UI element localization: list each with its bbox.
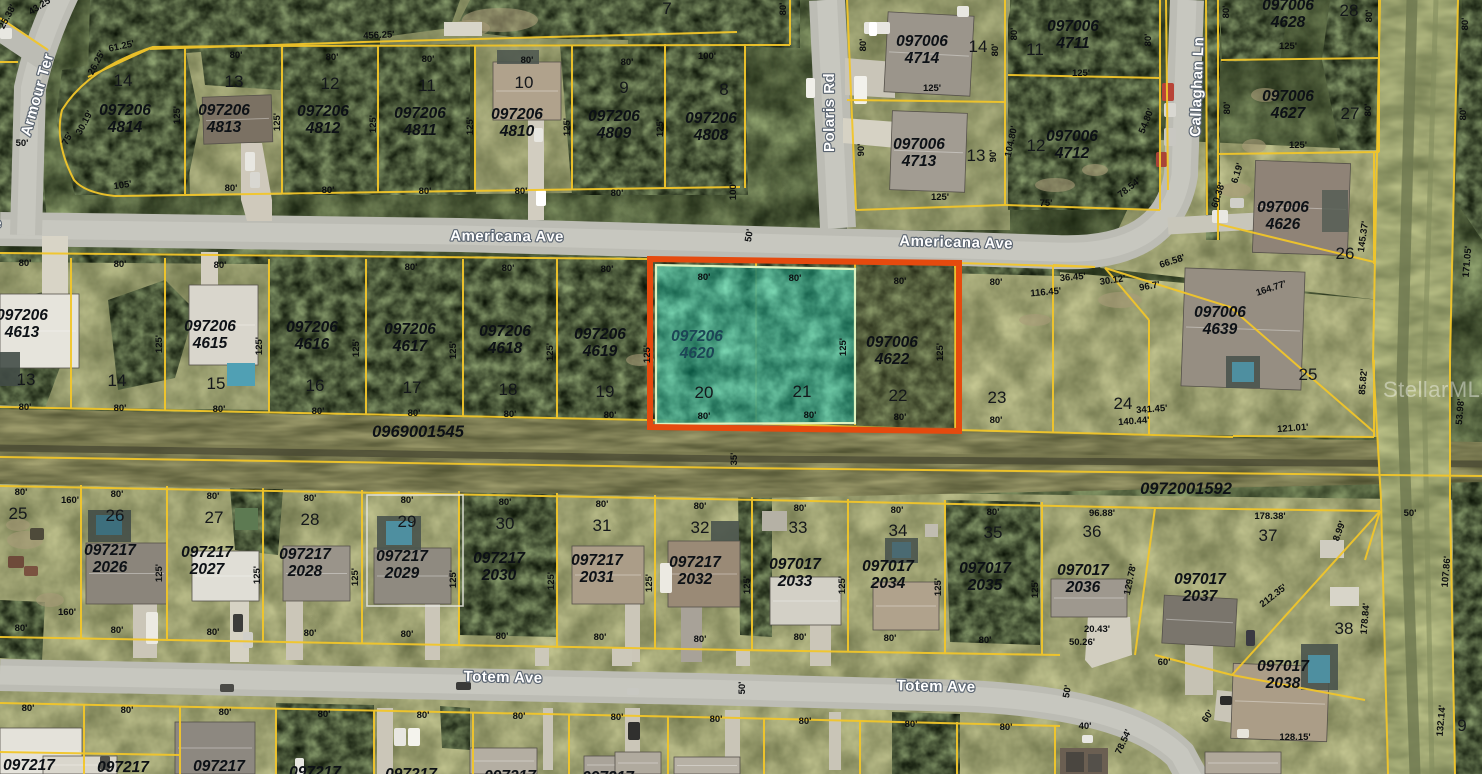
- svg-text:097217: 097217: [193, 758, 246, 774]
- svg-text:80': 80': [698, 272, 711, 283]
- svg-text:80': 80': [611, 712, 624, 723]
- svg-text:80': 80': [304, 628, 317, 639]
- svg-text:24: 24: [1114, 394, 1133, 413]
- svg-text:80': 80': [322, 185, 335, 196]
- svg-text:2030: 2030: [481, 567, 517, 584]
- svg-text:097206: 097206: [286, 319, 338, 336]
- svg-text:80': 80': [230, 50, 243, 61]
- svg-text:125': 125': [154, 335, 165, 353]
- svg-text:80': 80': [990, 44, 1001, 57]
- svg-text:27: 27: [1341, 104, 1360, 123]
- svg-text:4712: 4712: [1054, 145, 1090, 162]
- svg-text:40': 40': [1079, 721, 1092, 732]
- svg-text:2029: 2029: [384, 565, 420, 582]
- svg-text:160': 160': [61, 495, 79, 506]
- svg-text:097217: 097217: [473, 550, 526, 567]
- svg-text:15: 15: [207, 374, 226, 393]
- svg-text:125': 125': [465, 117, 476, 135]
- svg-text:20: 20: [695, 383, 714, 402]
- svg-text:80': 80': [621, 57, 634, 68]
- svg-text:35': 35': [729, 453, 740, 466]
- svg-text:25: 25: [9, 504, 28, 523]
- svg-text:125': 125': [642, 345, 653, 363]
- svg-text:097206: 097206: [574, 326, 626, 343]
- svg-text:4713: 4713: [901, 153, 937, 170]
- svg-text:125': 125': [1279, 41, 1297, 52]
- svg-text:80': 80': [799, 716, 812, 727]
- svg-text:125': 125': [254, 337, 265, 355]
- svg-text:097006: 097006: [1046, 128, 1098, 145]
- svg-text:097006: 097006: [866, 334, 918, 351]
- svg-text:38: 38: [1335, 619, 1354, 638]
- svg-text:50': 50': [16, 138, 29, 149]
- svg-text:80': 80': [225, 183, 238, 194]
- svg-text:097017: 097017: [1174, 571, 1227, 588]
- svg-text:80': 80': [326, 52, 339, 63]
- svg-text:Callaghan Ln: Callaghan Ln: [1187, 36, 1207, 137]
- svg-text:140.44': 140.44': [1118, 415, 1150, 428]
- svg-text:125': 125': [837, 576, 848, 594]
- svg-text:20.43': 20.43': [1084, 624, 1110, 635]
- svg-text:10: 10: [515, 73, 534, 92]
- svg-text:26: 26: [1336, 244, 1355, 263]
- svg-text:23: 23: [988, 388, 1007, 407]
- svg-text:125': 125': [1030, 580, 1041, 598]
- svg-text:097006: 097006: [1257, 199, 1309, 216]
- svg-text:125': 125': [933, 578, 944, 596]
- svg-text:125': 125': [742, 576, 753, 594]
- svg-text:097206: 097206: [394, 105, 446, 122]
- svg-text:4628: 4628: [1270, 14, 1306, 31]
- svg-text:2027: 2027: [189, 561, 226, 578]
- svg-text:125': 125': [655, 119, 666, 137]
- svg-text:13: 13: [967, 146, 986, 165]
- svg-text:80': 80': [1363, 104, 1374, 117]
- svg-text:80': 80': [778, 3, 789, 16]
- svg-text:Ave: Ave: [0, 215, 2, 232]
- svg-text:80': 80': [219, 707, 232, 718]
- svg-text:80': 80': [1009, 28, 1020, 41]
- svg-text:80': 80': [22, 703, 35, 714]
- svg-text:11: 11: [1026, 40, 1044, 59]
- svg-text:4639: 4639: [1202, 321, 1238, 338]
- svg-text:36: 36: [1083, 522, 1102, 541]
- svg-text:90': 90': [988, 150, 999, 163]
- svg-text:21: 21: [793, 382, 812, 401]
- svg-text:125': 125': [272, 113, 283, 131]
- svg-text:60': 60': [1158, 657, 1171, 668]
- svg-text:80': 80': [401, 629, 414, 640]
- svg-text:80': 80': [111, 625, 124, 636]
- svg-text:097017: 097017: [959, 560, 1012, 577]
- svg-text:80': 80': [304, 493, 317, 504]
- svg-text:097217: 097217: [582, 769, 635, 774]
- svg-text:121.01': 121.01': [1277, 422, 1309, 435]
- svg-text:80': 80': [19, 258, 32, 269]
- svg-text:2036: 2036: [1065, 579, 1101, 596]
- svg-text:80': 80': [794, 632, 807, 643]
- svg-text:80': 80': [858, 39, 869, 52]
- svg-text:80': 80': [114, 259, 127, 270]
- svg-text:85.82': 85.82': [1357, 368, 1370, 395]
- svg-text:80': 80': [710, 714, 723, 725]
- svg-text:125': 125': [350, 568, 361, 586]
- svg-text:80': 80': [496, 631, 509, 642]
- svg-text:7: 7: [662, 0, 671, 18]
- svg-text:4711: 4711: [1055, 35, 1089, 52]
- svg-text:097206: 097206: [0, 307, 48, 324]
- svg-text:80': 80': [694, 501, 707, 512]
- svg-text:2026: 2026: [92, 559, 128, 576]
- svg-text:80': 80': [594, 632, 607, 643]
- svg-text:4618: 4618: [487, 340, 523, 357]
- svg-text:80': 80': [207, 491, 220, 502]
- svg-text:50': 50': [743, 228, 756, 243]
- svg-text:4809: 4809: [596, 125, 632, 142]
- svg-text:75': 75': [1040, 198, 1053, 209]
- svg-text:80': 80': [804, 410, 817, 421]
- svg-text:80': 80': [1000, 722, 1013, 733]
- svg-text:11: 11: [418, 76, 436, 95]
- svg-text:456.25': 456.25': [363, 29, 395, 42]
- svg-text:32: 32: [691, 518, 710, 537]
- svg-text:80': 80': [905, 719, 918, 730]
- svg-text:125': 125': [931, 192, 949, 203]
- svg-text:2034: 2034: [870, 575, 906, 592]
- svg-text:125': 125': [172, 106, 183, 124]
- svg-text:80': 80': [111, 489, 124, 500]
- svg-text:80': 80': [15, 487, 28, 498]
- svg-text:2028: 2028: [287, 563, 323, 580]
- svg-text:4616: 4616: [294, 336, 330, 353]
- svg-text:125': 125': [1072, 68, 1090, 79]
- svg-text:4613: 4613: [4, 324, 40, 341]
- svg-text:80': 80': [1458, 108, 1469, 121]
- svg-text:29: 29: [398, 512, 417, 531]
- svg-text:80': 80': [499, 497, 512, 508]
- svg-text:50.26': 50.26': [1069, 637, 1095, 648]
- svg-text:22: 22: [889, 386, 908, 405]
- svg-text:125': 125': [252, 566, 263, 584]
- svg-text:Americana Ave: Americana Ave: [450, 228, 564, 246]
- svg-text:80': 80': [987, 507, 1000, 518]
- svg-text:2031: 2031: [579, 569, 614, 586]
- svg-text:4812: 4812: [305, 120, 341, 137]
- svg-text:13: 13: [17, 370, 36, 389]
- svg-text:4626: 4626: [1265, 216, 1301, 233]
- svg-text:097206: 097206: [479, 323, 531, 340]
- svg-text:50': 50': [1404, 508, 1417, 519]
- svg-text:25: 25: [1299, 365, 1318, 384]
- svg-text:80': 80': [401, 495, 414, 506]
- svg-text:80': 80': [405, 262, 418, 273]
- svg-text:33: 33: [789, 518, 808, 537]
- svg-text:80': 80': [884, 633, 897, 644]
- svg-text:097217: 097217: [279, 546, 332, 563]
- svg-text:125': 125': [368, 115, 379, 133]
- svg-text:80': 80': [502, 263, 515, 274]
- svg-text:4617: 4617: [392, 338, 429, 355]
- svg-text:80': 80': [419, 186, 432, 197]
- svg-text:80': 80': [979, 635, 992, 646]
- svg-text:097217: 097217: [669, 554, 722, 571]
- svg-text:96.88': 96.88': [1089, 508, 1115, 519]
- svg-text:50': 50': [737, 682, 748, 695]
- svg-text:097006: 097006: [1047, 18, 1099, 35]
- svg-text:13: 13: [225, 72, 244, 91]
- svg-text:4622: 4622: [874, 351, 910, 368]
- svg-text:Polaris Rd: Polaris Rd: [821, 73, 838, 152]
- svg-text:125': 125': [448, 341, 459, 359]
- svg-text:097006: 097006: [1262, 0, 1314, 14]
- svg-text:160': 160': [58, 607, 76, 618]
- svg-text:4714: 4714: [904, 50, 940, 67]
- svg-text:097206: 097206: [491, 106, 543, 123]
- svg-text:80': 80': [611, 188, 624, 199]
- svg-text:12: 12: [321, 74, 340, 93]
- svg-text:80': 80': [504, 409, 517, 420]
- svg-text:80': 80': [515, 186, 528, 197]
- svg-text:80': 80': [990, 277, 1003, 288]
- svg-text:125': 125': [923, 83, 941, 94]
- svg-text:37: 37: [1259, 526, 1278, 545]
- svg-text:2033: 2033: [777, 573, 813, 590]
- svg-text:31: 31: [593, 516, 612, 535]
- svg-text:80': 80': [1460, 18, 1471, 31]
- svg-text:4627: 4627: [1270, 105, 1307, 122]
- svg-text:80': 80': [312, 406, 325, 417]
- svg-text:80': 80': [1222, 102, 1233, 115]
- svg-text:100': 100': [698, 51, 716, 62]
- svg-text:097206: 097206: [671, 328, 723, 345]
- svg-text:36.45': 36.45': [1059, 271, 1086, 284]
- svg-text:80': 80': [513, 711, 526, 722]
- svg-text:097217: 097217: [289, 764, 342, 774]
- svg-text:80': 80': [891, 505, 904, 516]
- svg-text:2032: 2032: [677, 571, 713, 588]
- svg-text:4619: 4619: [582, 343, 618, 360]
- svg-text:80': 80': [604, 410, 617, 421]
- svg-text:097217: 097217: [376, 548, 429, 565]
- svg-text:4811: 4811: [402, 122, 436, 139]
- svg-text:80': 80': [213, 404, 226, 415]
- svg-text:80': 80': [789, 273, 802, 284]
- svg-text:9: 9: [1457, 716, 1466, 735]
- svg-text:80': 80': [1364, 10, 1375, 23]
- svg-text:14: 14: [114, 71, 133, 90]
- svg-text:4808: 4808: [693, 127, 729, 144]
- svg-text:097006: 097006: [896, 33, 948, 50]
- svg-text:125': 125': [562, 118, 573, 136]
- svg-text:097006: 097006: [1262, 88, 1314, 105]
- svg-text:80': 80': [694, 634, 707, 645]
- svg-text:50': 50': [1061, 684, 1074, 699]
- svg-text:125': 125': [546, 572, 557, 590]
- svg-text:80': 80': [1143, 34, 1154, 47]
- svg-text:097206: 097206: [588, 108, 640, 125]
- svg-text:9: 9: [619, 78, 628, 97]
- svg-text:097217: 097217: [84, 542, 137, 559]
- svg-text:4615: 4615: [192, 335, 228, 352]
- svg-text:0972001592: 0972001592: [1140, 480, 1232, 498]
- svg-text:80': 80': [318, 709, 331, 720]
- svg-text:2037: 2037: [1182, 588, 1219, 605]
- svg-text:125': 125': [448, 570, 459, 588]
- svg-text:097217: 097217: [571, 552, 624, 569]
- svg-text:0969001545: 0969001545: [372, 423, 465, 441]
- svg-text:4620: 4620: [679, 345, 715, 362]
- svg-text:097217: 097217: [3, 757, 56, 774]
- svg-text:097206: 097206: [198, 102, 250, 119]
- svg-text:128.15': 128.15': [1279, 732, 1310, 743]
- svg-text:097006: 097006: [893, 136, 945, 153]
- svg-text:4814: 4814: [107, 119, 143, 136]
- svg-text:097206: 097206: [685, 110, 737, 127]
- svg-text:80': 80': [19, 402, 32, 413]
- svg-text:30: 30: [496, 514, 515, 533]
- svg-text:097206: 097206: [297, 103, 349, 120]
- svg-text:125': 125': [644, 574, 655, 592]
- svg-text:80': 80': [422, 54, 435, 65]
- svg-text:80': 80': [15, 623, 28, 634]
- svg-text:125': 125': [351, 339, 362, 357]
- svg-text:4813: 4813: [206, 119, 242, 136]
- svg-text:097206: 097206: [99, 102, 151, 119]
- svg-text:125': 125': [838, 338, 849, 356]
- svg-text:125': 125': [1289, 140, 1307, 151]
- svg-text:097217: 097217: [385, 766, 438, 774]
- svg-text:80': 80': [596, 499, 609, 510]
- svg-text:097217: 097217: [181, 544, 234, 561]
- svg-text:StellarMLS: StellarMLS: [1383, 377, 1482, 402]
- svg-text:27: 27: [205, 508, 224, 527]
- svg-text:18: 18: [499, 380, 518, 399]
- svg-text:341.45': 341.45': [1136, 403, 1168, 416]
- svg-text:097206: 097206: [384, 321, 436, 338]
- svg-text:80': 80': [990, 415, 1003, 426]
- svg-text:097217: 097217: [484, 768, 537, 774]
- svg-text:14: 14: [969, 37, 988, 56]
- svg-text:80': 80': [1221, 6, 1232, 19]
- svg-text:90': 90': [856, 144, 867, 157]
- svg-text:16: 16: [306, 376, 325, 395]
- svg-text:125': 125': [545, 343, 556, 361]
- svg-text:125': 125': [935, 343, 946, 361]
- svg-text:097017: 097017: [862, 558, 915, 575]
- svg-text:8: 8: [719, 80, 728, 99]
- svg-text:53.98': 53.98': [1454, 398, 1467, 425]
- svg-text:80': 80': [894, 276, 907, 287]
- svg-text:80': 80': [794, 503, 807, 514]
- svg-text:80': 80': [601, 264, 614, 275]
- svg-text:14: 14: [108, 371, 127, 390]
- svg-text:34: 34: [889, 521, 908, 540]
- svg-text:12: 12: [1027, 136, 1046, 155]
- svg-text:80': 80': [698, 411, 711, 422]
- svg-text:178.38': 178.38': [1254, 511, 1285, 522]
- svg-text:Totem Ave: Totem Ave: [896, 677, 975, 696]
- svg-text:80': 80': [121, 705, 134, 716]
- svg-text:Totem Ave: Totem Ave: [463, 668, 542, 687]
- svg-text:80': 80': [408, 408, 421, 419]
- svg-text:80': 80': [214, 260, 227, 271]
- svg-text:28: 28: [1340, 1, 1359, 20]
- svg-text:80': 80': [894, 412, 907, 423]
- svg-text:097017: 097017: [769, 556, 822, 573]
- svg-text:28: 28: [301, 510, 320, 529]
- svg-text:80': 80': [417, 710, 430, 721]
- svg-text:Americana Ave: Americana Ave: [899, 233, 1013, 253]
- svg-text:26: 26: [106, 506, 125, 525]
- svg-text:80': 80': [207, 627, 220, 638]
- svg-text:125': 125': [154, 564, 165, 582]
- svg-text:100': 100': [728, 182, 739, 200]
- svg-text:17: 17: [403, 378, 422, 397]
- svg-text:097217: 097217: [97, 759, 150, 774]
- svg-text:2035: 2035: [967, 577, 1003, 594]
- svg-text:097017: 097017: [1057, 562, 1110, 579]
- svg-text:097006: 097006: [1194, 304, 1246, 321]
- svg-text:2038: 2038: [1265, 675, 1301, 692]
- svg-text:19: 19: [596, 382, 615, 401]
- svg-text:80': 80': [521, 55, 534, 66]
- svg-text:80': 80': [114, 403, 127, 414]
- svg-text:097206: 097206: [184, 318, 236, 335]
- svg-text:4810: 4810: [499, 123, 535, 140]
- svg-text:35: 35: [984, 523, 1003, 542]
- svg-text:097017: 097017: [1257, 658, 1310, 675]
